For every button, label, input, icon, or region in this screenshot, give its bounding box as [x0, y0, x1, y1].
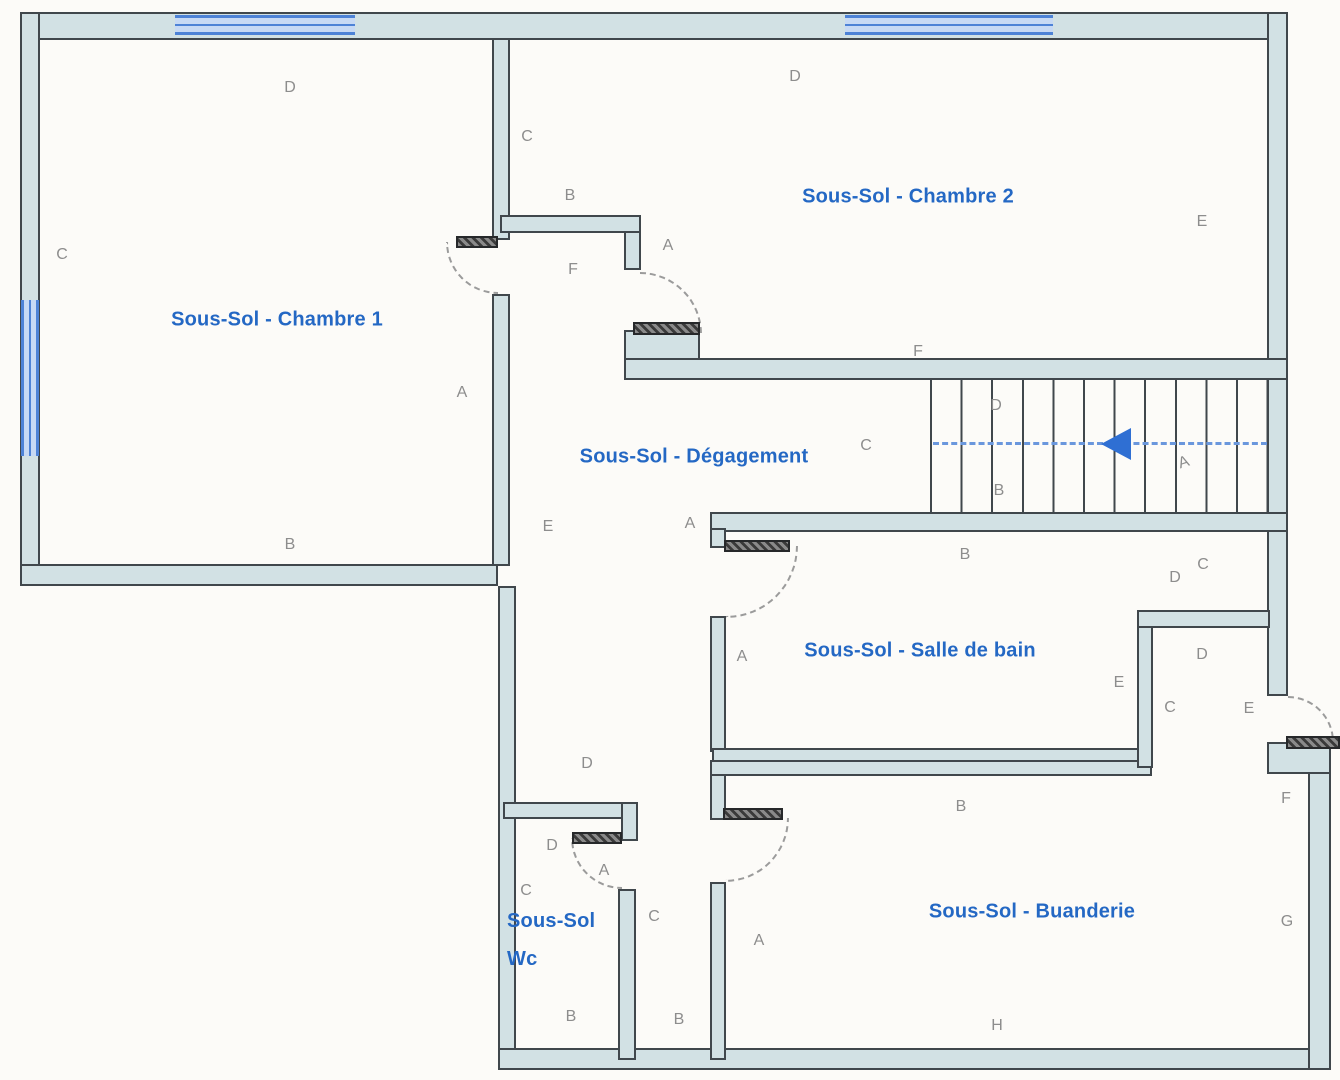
wall-hall-nook-return — [624, 231, 641, 270]
wall-wc-top — [503, 802, 638, 819]
window-top-right — [845, 15, 1053, 35]
wall-letter: C — [56, 246, 68, 264]
wall-letter: E — [1197, 213, 1208, 231]
stairs-walkline — [933, 442, 1267, 445]
wall-left-exterior — [20, 12, 40, 586]
staircase — [930, 380, 1267, 512]
door-arc-buanderie — [725, 818, 789, 882]
wall-west-lower-exterior — [498, 586, 516, 1070]
wall-letter: F — [568, 261, 578, 279]
wall-letter: C — [1164, 699, 1176, 717]
wall-letter: C — [521, 128, 533, 146]
floor-plan: DCABCBFADEFCDBAEAABDCDECEFBGHDDACBCBA So… — [0, 0, 1340, 1080]
door-leaf-wc — [572, 832, 622, 844]
wall-letter: C — [860, 437, 872, 455]
wall-letter: D — [1196, 646, 1208, 664]
room-label-wc: Sous-Sol Wc — [507, 902, 595, 978]
wall-letter: F — [1281, 790, 1291, 808]
wall-wc-right — [618, 889, 636, 1060]
wall-alcove-top — [1137, 610, 1270, 628]
wall-right-upper-exterior — [1267, 12, 1288, 696]
stairs-direction-arrow — [1101, 428, 1131, 460]
door-leaf-salle-de-bain — [724, 540, 790, 552]
door-leaf-buanderie — [723, 808, 783, 820]
wall-divider-chambres-top — [492, 38, 510, 240]
wall-letter: G — [1281, 913, 1293, 931]
wall-letter: A — [457, 384, 468, 402]
door-leaf-chambre2 — [633, 322, 700, 335]
window-top-left — [175, 15, 355, 35]
room-label-buanderie: Sous-Sol - Buanderie — [929, 901, 1135, 924]
wall-central-lowest — [710, 882, 726, 1060]
wall-letter: B — [566, 1008, 577, 1026]
room-label-salle-de-bain: Sous-Sol - Salle de bain — [804, 640, 1036, 663]
wall-letter: B — [960, 546, 971, 564]
wall-letter: E — [1244, 700, 1255, 718]
wall-hall-nook-top — [500, 215, 641, 233]
wall-letter: E — [543, 518, 554, 536]
wall-letter: A — [663, 237, 674, 255]
wall-letter: C — [520, 882, 532, 900]
wall-letter: D — [284, 79, 296, 97]
wall-letter: A — [599, 862, 610, 880]
wall-letter: B — [674, 1011, 685, 1029]
wall-letter: B — [956, 798, 967, 816]
wall-chambre2-bottom — [624, 358, 1288, 380]
wall-letter: D — [1169, 569, 1181, 587]
door-arc-salle-de-bain — [726, 546, 798, 618]
door-leaf-chambre1 — [456, 236, 498, 248]
wall-letter: D — [990, 397, 1002, 415]
room-label-degagement: Sous-Sol - Dégagement — [580, 446, 809, 469]
wall-letter: D — [546, 837, 558, 855]
wall-buanderie-top — [710, 760, 1152, 776]
wall-central-mid — [710, 616, 726, 752]
door-arc-chambre1 — [446, 242, 498, 294]
wall-letter: C — [648, 908, 660, 926]
wall-letter: F — [913, 343, 923, 361]
wall-letter: A — [737, 648, 748, 666]
door-leaf-entry — [1286, 736, 1340, 749]
wall-letter: C — [1197, 556, 1209, 574]
door-arc-wc — [571, 838, 622, 889]
room-label-chambre1: Sous-Sol - Chambre 1 — [171, 309, 383, 332]
room-label-chambre2: Sous-Sol - Chambre 2 — [802, 186, 1014, 209]
window-left-wall — [21, 300, 39, 456]
wall-letter: B — [285, 536, 296, 554]
wall-buanderie-right-exterior — [1308, 772, 1331, 1070]
wall-letter: E — [1114, 674, 1125, 692]
wall-letter: A — [685, 515, 696, 533]
wall-letter: A — [754, 932, 765, 950]
wall-stairs-bottom — [710, 512, 1288, 532]
wall-letter: D — [789, 68, 801, 86]
wall-chambre1-bottom — [20, 564, 498, 586]
wall-letter: D — [581, 755, 593, 773]
wall-wc-notch — [621, 802, 638, 841]
wall-sdb-east — [1137, 610, 1153, 768]
wall-letter: H — [991, 1017, 1003, 1035]
wall-divider-chambres-bottom — [492, 294, 510, 566]
wall-letter: B — [565, 187, 576, 205]
wall-letter: B — [994, 482, 1005, 500]
